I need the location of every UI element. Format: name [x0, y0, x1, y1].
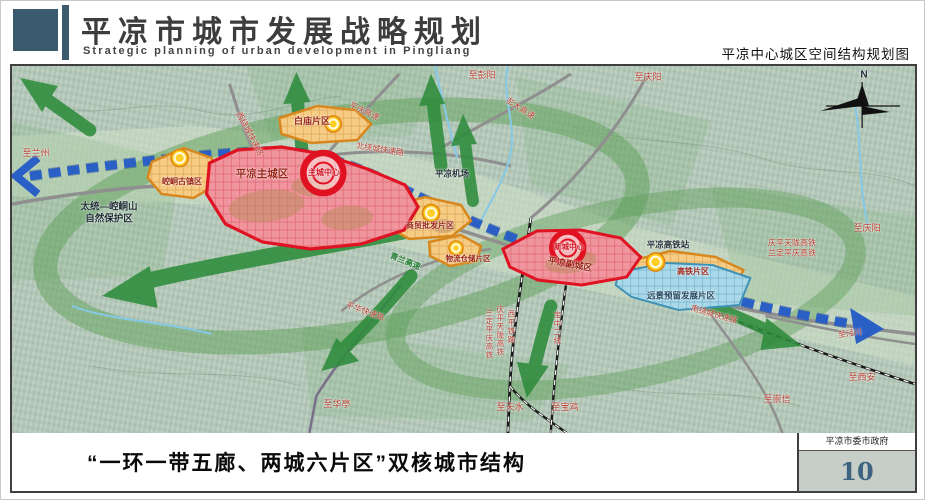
map-label: 西绕城快速路 [233, 110, 265, 157]
map-label: 北绕城快速路 [355, 141, 404, 159]
map-label: 白庙片区 [294, 116, 330, 128]
map-label: 至崇信 [763, 394, 790, 406]
header: 平凉市城市发展战略规划 Strategic planning of urban … [1, 1, 925, 64]
map-label: 平凉机场 [435, 168, 469, 179]
map-label: 主城中心 [308, 168, 340, 178]
map-label: 宝中二线 [552, 311, 562, 345]
page-number: 10 [799, 451, 915, 491]
header-accent-square [13, 9, 58, 51]
planning-map: N至兰州太统—崆峒山 自然保护区崆峒古镇区平凉主城区主城中心白庙片区西绕城快速路… [12, 66, 915, 435]
map-label: 至庆阳 [853, 223, 880, 235]
footer: “一环一带五廊、两城六片区”双核城市结构 平凉市委市政府 10 [12, 433, 915, 491]
map-label: 平华快速路 [344, 300, 385, 323]
map-label: 至华亭 [323, 399, 350, 411]
map-label: 太统—崆峒山 自然保护区 [80, 202, 137, 227]
map-label: 至天水 [496, 402, 523, 414]
map-label: 庆平天陇高铁 兰定平庆高铁 [768, 239, 816, 260]
map-label: 西平铁路 [506, 310, 516, 344]
map-labels-layer: N至兰州太统—崆峒山 自然保护区崆峒古镇区平凉主城区主城中心白庙片区西绕城快速路… [12, 66, 915, 433]
map-caption: 平凉中心城区空间结构规划图 [722, 43, 911, 63]
map-label: 南绕城快速路 [689, 303, 738, 326]
map-label: 平凉副城区 [547, 255, 593, 274]
map-label: 高铁片区 [677, 267, 709, 277]
map-label: 新城中心 [554, 242, 584, 252]
map-label: 商贸批发片区 [406, 221, 454, 231]
header-accent-bar [62, 5, 69, 60]
map-label: 彭大高速 [504, 96, 537, 122]
map-label: 至泾川 [837, 327, 862, 341]
map-label: 青兰高速 [388, 251, 422, 273]
map-label: 至兰州 [22, 148, 49, 160]
agency-label: 平凉市委市政府 [799, 433, 915, 451]
map-label: 庆平天陇高铁 [495, 306, 505, 357]
map-label: 至彭阳 [468, 70, 495, 82]
map-label: N [860, 69, 867, 82]
footer-page-box: 平凉市委市政府 10 [797, 433, 915, 491]
map-label: 平凉高铁站 [647, 239, 690, 250]
page: 平凉市城市发展战略规划 Strategic planning of urban … [0, 0, 925, 500]
map-label: 至庆阳 [634, 72, 661, 84]
map-label: 平庆高速 [347, 101, 380, 124]
map-label: 崆峒古镇区 [162, 177, 202, 187]
map-label: 至西安 [848, 372, 875, 384]
map-label: 平凉主城区 [236, 168, 289, 182]
map-label: 远景预留发展片区 [647, 290, 715, 301]
map-label: 物流仓储片区 [446, 254, 491, 264]
map-label: 兰定平庆高铁 [484, 309, 494, 360]
map-frame: N至兰州太统—崆峒山 自然保护区崆峒古镇区平凉主城区主城中心白庙片区西绕城快速路… [10, 64, 917, 493]
structure-caption: “一环一带五廊、两城六片区”双核城市结构 [87, 447, 526, 477]
map-label: 至宝鸡 [551, 402, 578, 414]
page-subtitle: Strategic planning of urban development … [83, 45, 472, 57]
